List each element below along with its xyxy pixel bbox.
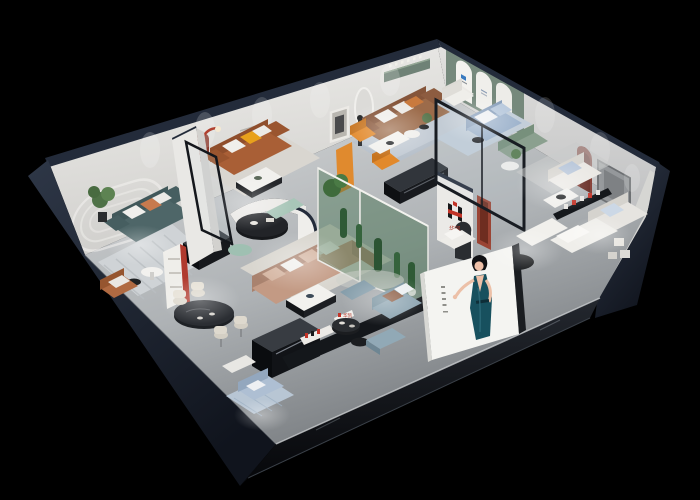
mint-pouf xyxy=(228,244,252,256)
showroom-render: 华凯 xyxy=(0,0,700,500)
showroom-svg: 华凯 xyxy=(0,0,700,500)
model-face xyxy=(474,261,483,270)
